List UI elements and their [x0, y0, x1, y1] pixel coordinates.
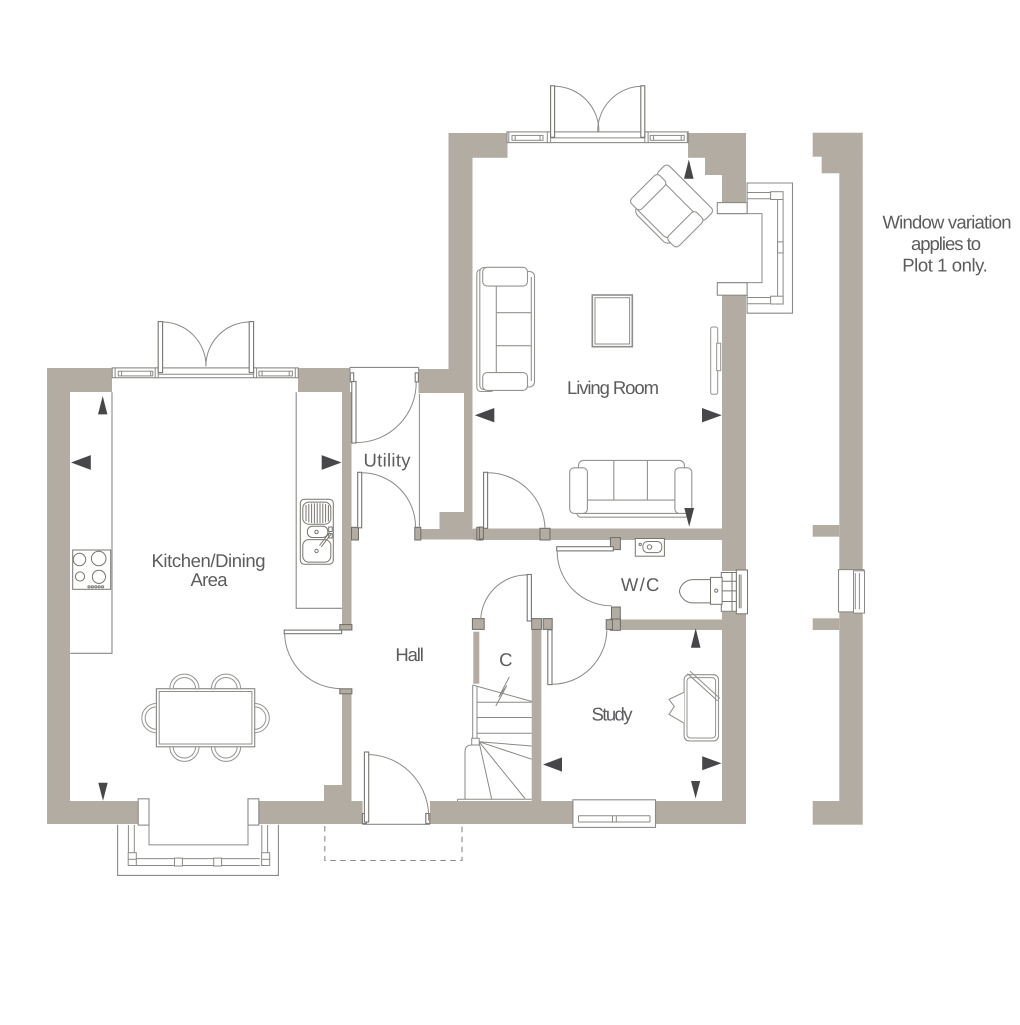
svg-text:Utility: Utility: [364, 449, 412, 470]
svg-text:Living Room: Living Room: [567, 377, 659, 398]
svg-text:applies to: applies to: [911, 233, 981, 254]
svg-text:Kitchen/Dining: Kitchen/Dining: [152, 550, 266, 571]
svg-text:C: C: [499, 649, 512, 670]
svg-text:Hall: Hall: [395, 644, 424, 665]
svg-text:Window variation: Window variation: [883, 211, 1012, 232]
svg-text:Area: Area: [191, 569, 229, 590]
svg-text:Plot 1 only.: Plot 1 only.: [902, 255, 988, 276]
svg-text:Study: Study: [592, 704, 634, 725]
svg-text:W/C: W/C: [621, 574, 660, 595]
